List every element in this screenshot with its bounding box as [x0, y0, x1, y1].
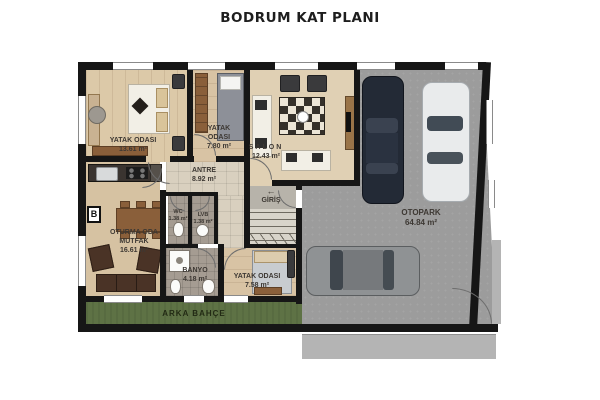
floor-plan-page: BODRUM KAT PLANI ARKA BAHÇE B — [0, 0, 600, 400]
window — [445, 62, 478, 70]
wall-bedroom-bottom — [170, 156, 194, 162]
sofa-cushion — [312, 153, 323, 162]
room-label-living-kitchen: OTURMA ODA MUTFAK 16.61 m² — [104, 228, 164, 255]
room-label-lvb: LVB 1.38 m² — [190, 212, 216, 226]
bed-pillow — [220, 76, 241, 90]
armchair — [307, 75, 327, 92]
room-label-bedroom3: YATAK ODASI 7.58 m² — [226, 272, 288, 290]
wall-salon-bottom — [272, 180, 360, 186]
window — [104, 295, 142, 303]
shower-drain — [176, 257, 183, 264]
room-label-wc: WC 1.38 m² — [167, 209, 189, 223]
toilet — [173, 222, 184, 237]
window — [188, 62, 225, 70]
pavement-bottom — [302, 334, 496, 359]
bed-pillow — [254, 251, 290, 263]
wall-bedroom2-bottom — [216, 156, 244, 162]
bed-pillow — [156, 88, 168, 108]
car-gray-roof — [343, 250, 383, 290]
chair — [136, 201, 146, 208]
window — [184, 295, 204, 303]
window — [224, 295, 248, 303]
window — [488, 180, 495, 208]
window — [486, 100, 493, 144]
sofa-cushion — [255, 100, 267, 110]
window — [113, 62, 153, 70]
wall-bedroom1-bottom — [86, 156, 146, 162]
room-label-giris: ← GİRİŞ — [250, 187, 292, 205]
back-garden: ARKA BAHÇE — [86, 302, 302, 324]
room-label-otopark: OTOPARK 64.84 m² — [386, 208, 456, 229]
wall-bottom — [78, 324, 498, 332]
wall-banyo-bedroom3 — [218, 244, 224, 296]
window — [78, 236, 86, 286]
table-centerpiece — [297, 111, 309, 123]
room-label-bedroom2: YATAK ODASI 7.80 m² — [196, 124, 242, 151]
bed-pillow — [156, 112, 168, 132]
nightstand — [172, 74, 185, 89]
car-white — [422, 82, 470, 202]
car-dark-rear-window — [366, 163, 398, 174]
entry-arrow-icon: ← — [250, 187, 292, 196]
wall-giris-garage-upper — [296, 180, 302, 190]
hall-floor — [218, 196, 244, 248]
car-white-rear-window — [427, 152, 463, 164]
room-label-bedroom1: YATAK ODASI 13.61 m² — [100, 136, 166, 154]
nightstand — [172, 136, 185, 151]
car-white-windshield — [427, 116, 463, 131]
garden-label: ARKA BAHÇE — [162, 309, 225, 318]
car-dark-roof — [366, 133, 398, 163]
wall-banyo-top — [166, 244, 198, 248]
pavement-right — [492, 240, 501, 324]
car-gray-windshield — [330, 250, 343, 290]
rug — [88, 106, 106, 124]
room-label-banyo: BANYO 4.18 m² — [172, 266, 218, 284]
wall-salon-garage — [354, 70, 360, 186]
wall-bedroom3-top — [246, 244, 302, 248]
tv-icon — [346, 112, 351, 132]
room-label-antre: ANTRE 8.92 m² — [176, 166, 232, 184]
window — [357, 62, 395, 70]
window — [78, 96, 86, 144]
room-label-salon: SALON 12.43 m² — [242, 143, 290, 161]
wall-giris-garage-lower — [296, 208, 302, 304]
column-marker: B — [87, 206, 101, 223]
sofa-dark — [96, 274, 156, 292]
car-dark-windshield — [366, 118, 398, 133]
armchair — [280, 75, 300, 92]
chair — [120, 201, 130, 208]
wall-bedroom1-bedroom2 — [187, 70, 193, 162]
kitchen-sink — [96, 167, 118, 181]
car-gray-rear-window — [383, 250, 394, 290]
plan-title: BODRUM KAT PLANI — [0, 10, 600, 26]
closet — [287, 250, 295, 278]
window — [275, 62, 318, 70]
